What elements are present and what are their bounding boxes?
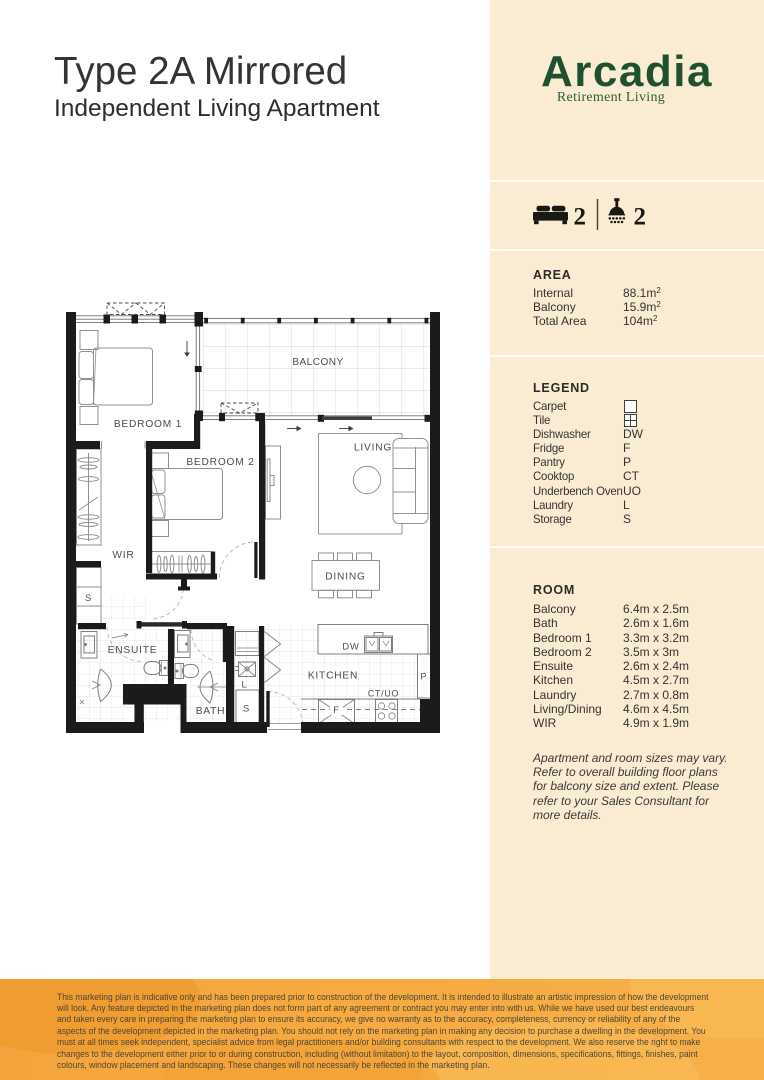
svg-text:ENSUITE: ENSUITE: [108, 645, 158, 656]
svg-text:LIVING: LIVING: [354, 443, 392, 454]
svg-text:2: 2: [634, 204, 647, 231]
svg-text:P: P: [420, 672, 427, 682]
svg-text:DINING: DINING: [325, 572, 365, 583]
svg-text:BALCONY: BALCONY: [292, 357, 343, 368]
svg-text:S: S: [243, 703, 250, 714]
svg-text:BEDROOM 2: BEDROOM 2: [186, 457, 254, 468]
svg-text:S: S: [85, 592, 92, 603]
svg-text:2: 2: [574, 204, 587, 231]
svg-text:F: F: [333, 704, 340, 715]
svg-text:DW: DW: [342, 641, 359, 652]
svg-text:BEDROOM 1: BEDROOM 1: [114, 419, 182, 430]
svg-text:KITCHEN: KITCHEN: [308, 671, 358, 682]
svg-text:WIR: WIR: [112, 550, 134, 561]
svg-text:L: L: [241, 679, 247, 690]
svg-text:CT/UO: CT/UO: [368, 689, 399, 699]
svg-text:BATH: BATH: [196, 706, 226, 717]
